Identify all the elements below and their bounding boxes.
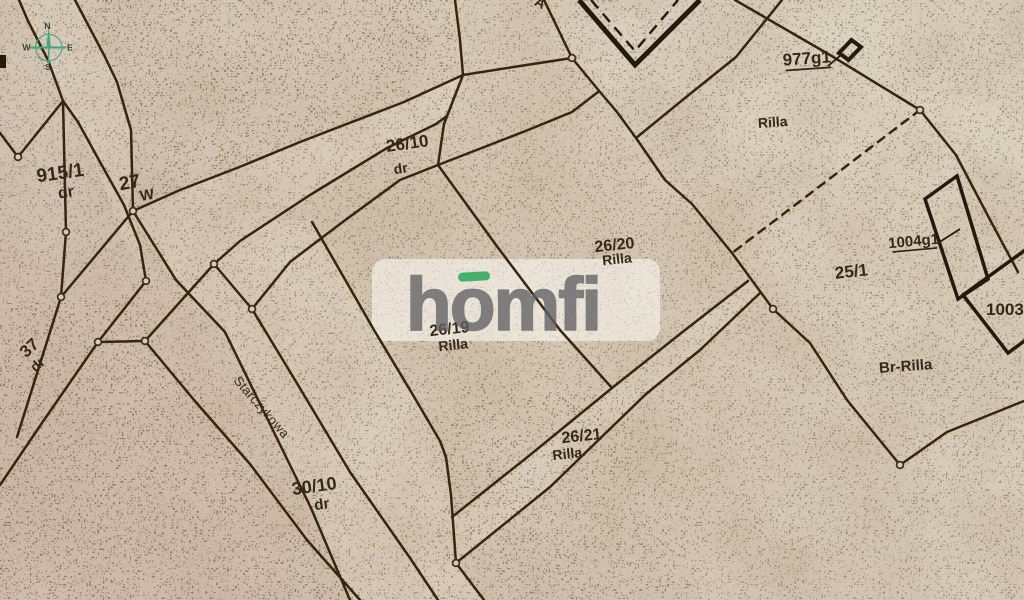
svg-text:E: E bbox=[67, 43, 73, 53]
svg-text:Rilla: Rilla bbox=[757, 113, 788, 131]
svg-text:W: W bbox=[22, 43, 31, 53]
svg-text:25/1: 25/1 bbox=[834, 260, 869, 282]
svg-text:dr: dr bbox=[393, 159, 410, 177]
svg-text:dr: dr bbox=[313, 495, 330, 514]
svg-text:dr: dr bbox=[57, 183, 75, 202]
svg-text:N: N bbox=[44, 21, 50, 31]
svg-text:Rilla: Rilla bbox=[601, 249, 632, 268]
svg-text:homfi: homfi bbox=[406, 262, 600, 346]
svg-text:977g1: 977g1 bbox=[782, 47, 831, 69]
svg-text:Rilla: Rilla bbox=[552, 444, 583, 463]
svg-text:S: S bbox=[45, 62, 51, 72]
svg-text:1003g: 1003g bbox=[986, 300, 1024, 319]
